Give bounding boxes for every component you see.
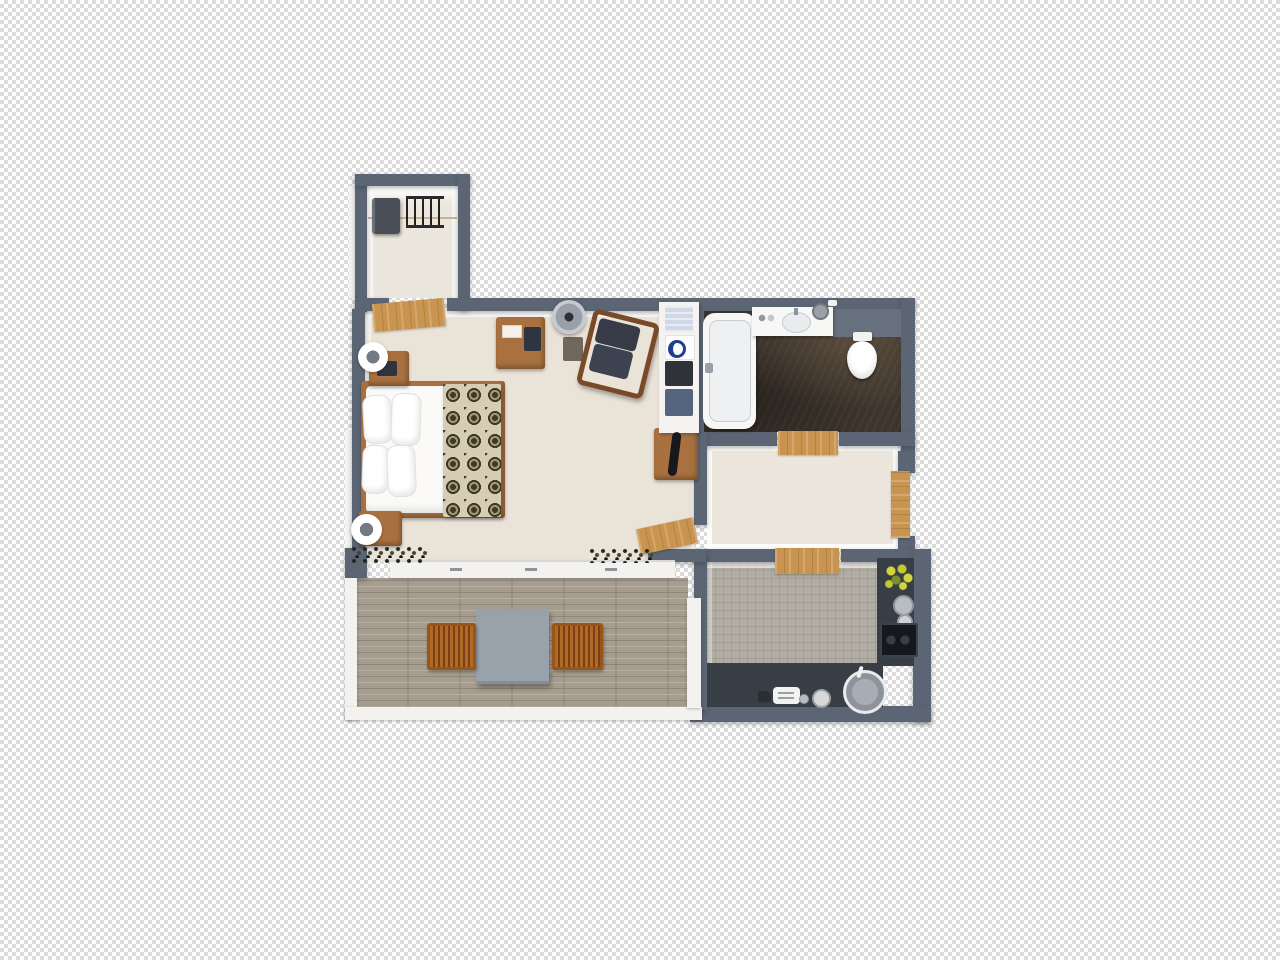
window-plants-left (351, 546, 429, 563)
pillow (386, 445, 417, 498)
wall-hall-east-upper (898, 451, 915, 473)
kettle (812, 689, 831, 708)
washbasin-faucet (794, 308, 798, 315)
shelf-basket-dark (665, 361, 693, 386)
wall-bathroom-east (901, 298, 915, 451)
door-handle-mark (450, 568, 462, 571)
suitcase (372, 198, 400, 234)
transparent-canvas (0, 0, 1280, 960)
bathtub-faucet (705, 363, 713, 373)
bowl (893, 595, 914, 616)
cooktop (880, 623, 918, 657)
coat-rack-icon (406, 196, 444, 228)
balcony-chair-left (427, 623, 476, 670)
shelf-towel-white (665, 335, 695, 360)
balcony-railing-right (687, 598, 701, 708)
door-handle-mark (605, 568, 617, 571)
bathtub (703, 313, 756, 429)
shelf-towels-blue (665, 306, 693, 332)
coffee-maker (758, 691, 771, 702)
bathtub-basin (709, 320, 751, 422)
pillow (362, 394, 394, 444)
balcony-railing-bottom (345, 707, 702, 720)
table-lamp-upper (358, 342, 388, 372)
jar (799, 694, 809, 704)
papers (502, 325, 522, 338)
washbasin (782, 312, 811, 333)
threshold-bathroom-hallway (778, 431, 838, 455)
patterned-throw-blanket (443, 384, 501, 517)
kitchen-round-sink (843, 670, 887, 714)
entry-door (891, 471, 910, 538)
hallway-floor (707, 446, 898, 549)
threshold-hallway-kitchen (775, 548, 839, 574)
door-handle-mark (525, 568, 537, 571)
kitchen-tile-floor (707, 562, 877, 665)
laptop (524, 327, 541, 351)
window-plants-right (589, 548, 653, 563)
toiletry-bottles (758, 313, 776, 323)
balcony-table (476, 609, 549, 684)
yellow-flower-pot (884, 564, 914, 591)
soap-dish (828, 300, 837, 306)
waste-bin (812, 303, 829, 320)
open-shelf-unit (659, 302, 699, 433)
wall-closet-top (355, 174, 470, 186)
pillow (390, 392, 422, 446)
table-lamp-lower (351, 514, 382, 545)
balcony-railing-left (345, 578, 357, 720)
floor-lamp (552, 300, 586, 334)
shelf-basket-blue (665, 389, 693, 416)
towel-blue-trim (668, 340, 686, 358)
wall-kitchen-south (690, 706, 931, 722)
wall-closet-left (355, 174, 367, 312)
toilet-flush-plate (853, 332, 872, 341)
toaster (773, 687, 800, 704)
wall-bath-hall-left (701, 432, 777, 446)
balcony-chair-right (552, 623, 603, 670)
wall-bath-hall-right (839, 432, 915, 446)
pillow (361, 445, 390, 495)
floor-mat (563, 337, 583, 361)
wall-closet-right (458, 174, 470, 310)
